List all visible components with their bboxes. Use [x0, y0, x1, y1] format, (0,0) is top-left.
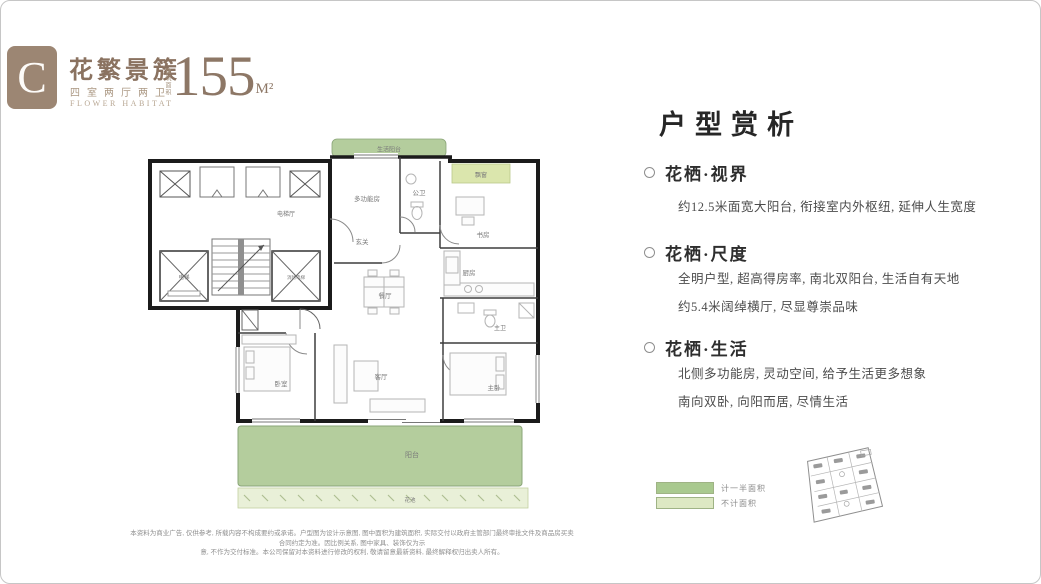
section-head-vision: 花栖·视界 [644, 160, 749, 185]
section-line: 约5.4米阔绰横厅, 尽显尊崇品味 [678, 296, 858, 315]
room-label-guest-bath: 公卫 [413, 189, 427, 197]
logo-letter: C [17, 56, 46, 100]
building-keyplan [799, 444, 890, 530]
legend-item-half-area: 计一半面积 [656, 482, 766, 494]
staircase [212, 239, 270, 295]
room-label-master-bedroom: 主卧 [488, 383, 502, 392]
room-label-dining: 餐厅 [379, 291, 393, 300]
section-head-life: 花栖·生活 [644, 335, 749, 360]
room-label-fire-elevator: 消防电梯 [287, 274, 305, 281]
room-label-flower-bed: 花池 [404, 496, 416, 504]
area-group: 建筑面积 155 M² [163, 50, 273, 104]
bullet-circle-icon [644, 342, 655, 353]
room-label-kitchen: 厨房 [463, 268, 476, 277]
logo-badge: C [7, 46, 57, 109]
disclaimer: 本资料为商业广告, 仅供参考, 所载内容不构成要约或承诺。户型图为设计示意图, … [128, 529, 576, 558]
page-subtitle-en: FLOWER HABITAT [70, 99, 173, 108]
room-label-bedroom: 卧室 [275, 379, 289, 388]
section-line: 南向双卧, 向阳而居, 尽情生活 [678, 391, 849, 410]
disclaimer-line: 本资料为商业广告, 仅供参考, 所载内容不构成要约或承诺。户型图为设计示意图, … [128, 529, 576, 548]
room-label-service-balcony: 生活阳台 [377, 146, 401, 154]
room-label-balcony: 阳台 [405, 450, 419, 459]
disclaimer-line: 意, 不作为交付标准。本公司保留对本资料进行修改的权利, 敬请留意最新资料, 最… [128, 548, 576, 558]
legend-item-no-area: 不计面积 [656, 497, 757, 509]
flower-bed-area [238, 488, 528, 508]
section-line: 全明户型, 超高得房率, 南北双阳台, 生活自有天地 [678, 268, 960, 287]
area-value: 155 [172, 50, 255, 104]
bullet-circle-icon [644, 167, 655, 178]
section-heading: 花栖·生活 [665, 335, 749, 360]
flyer-page: C 花繁景簇 四室两厅两卫 FLOWER HABITAT 建筑面积 155 M² [0, 0, 1041, 584]
legend-label: 不计面积 [721, 498, 757, 509]
section-line: 北侧多功能房, 灵动空间, 给予生活更多想象 [678, 363, 927, 382]
bullet-circle-icon [644, 247, 655, 258]
room-label-elevator: 电梯 [178, 273, 190, 281]
room-label-master-bath: 主卫 [494, 324, 506, 332]
page-subtitle: 四室两厅两卫 [70, 84, 172, 99]
analysis-title: 户型赏析 [659, 103, 803, 142]
section-head-scale: 花栖·尺度 [644, 240, 749, 265]
legend-swatch-half-area [656, 482, 714, 494]
room-label-study: 书房 [477, 230, 490, 239]
area-unit: M² [256, 81, 274, 98]
section-heading: 花栖·视界 [665, 160, 749, 185]
room-label-elevator-hall: 电梯厅 [277, 210, 295, 218]
entry-corridor [242, 309, 320, 330]
area-label: 建筑面积 [163, 68, 172, 96]
legend-swatch-no-area [656, 497, 714, 509]
room-label-foyer: 玄关 [356, 237, 370, 246]
balcony-area [238, 426, 522, 486]
room-label-bay-window: 飘窗 [475, 171, 487, 179]
section-heading: 花栖·尺度 [665, 240, 749, 265]
floorplan-drawing: 生活阳台 飘窗 多功能房 公卫 书房 玄关 厨房 餐厅 电梯厅 电梯 消防电梯 … [138, 133, 568, 525]
room-label-living: 客厅 [375, 372, 389, 381]
legend-label: 计一半面积 [721, 483, 766, 494]
room-label-multi-function: 多功能房 [354, 194, 380, 203]
section-line: 约12.5米面宽大阳台, 衔接室内外枢纽, 延伸人生宽度 [678, 196, 976, 215]
